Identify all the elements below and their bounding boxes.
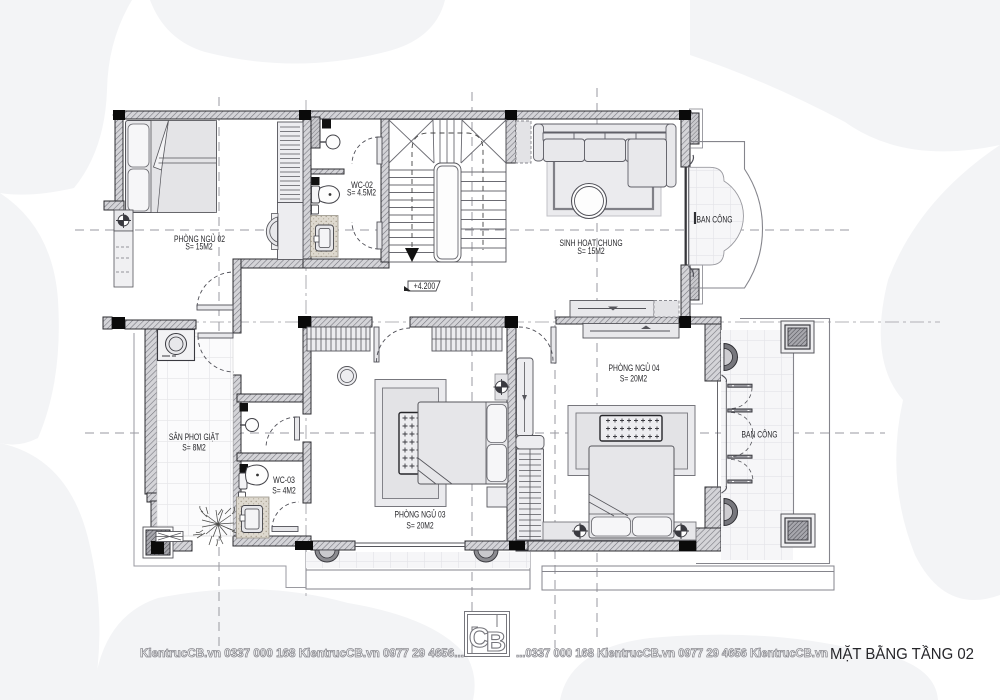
svg-text:BAN CÔNG: BAN CÔNG: [742, 430, 778, 440]
svg-text:S= 20M2: S= 20M2: [406, 521, 434, 531]
svg-text:PHÒNG NGỦ 04: PHÒNG NGỦ 04: [609, 363, 660, 373]
svg-text:SÂN PHƠI GIẶT: SÂN PHƠI GIẶT: [169, 432, 219, 442]
svg-text:S= 20M2: S= 20M2: [620, 374, 648, 384]
svg-text:S= 4.5M2: S= 4.5M2: [347, 188, 377, 198]
svg-text:B: B: [486, 626, 506, 657]
svg-text:...0337 000 168 KientrucCB.v: ...0337 000 168 KientrucCB.vn 0977 29 46…: [516, 646, 828, 660]
svg-text:S= 15M2: S= 15M2: [577, 246, 605, 256]
svg-text:WC-03: WC-03: [273, 475, 295, 485]
svg-text:PHÒNG NGỦ 03: PHÒNG NGỦ 03: [395, 510, 446, 520]
svg-text:KientrucCB.vn 0337 000 168: KientrucCB.vn 0337 000 168 KientrucCB.vn…: [140, 646, 464, 660]
svg-text:MẶT BẰNG TẦNG 02: MẶT BẰNG TẦNG 02: [830, 645, 974, 663]
svg-text:S= 15M2: S= 15M2: [185, 242, 213, 252]
svg-text:S= 8M2: S= 8M2: [182, 443, 206, 453]
svg-text:BAN CÔNG: BAN CÔNG: [697, 215, 733, 225]
svg-text:S= 4M2: S= 4M2: [272, 486, 296, 496]
svg-text:+4.200: +4.200: [414, 281, 436, 291]
